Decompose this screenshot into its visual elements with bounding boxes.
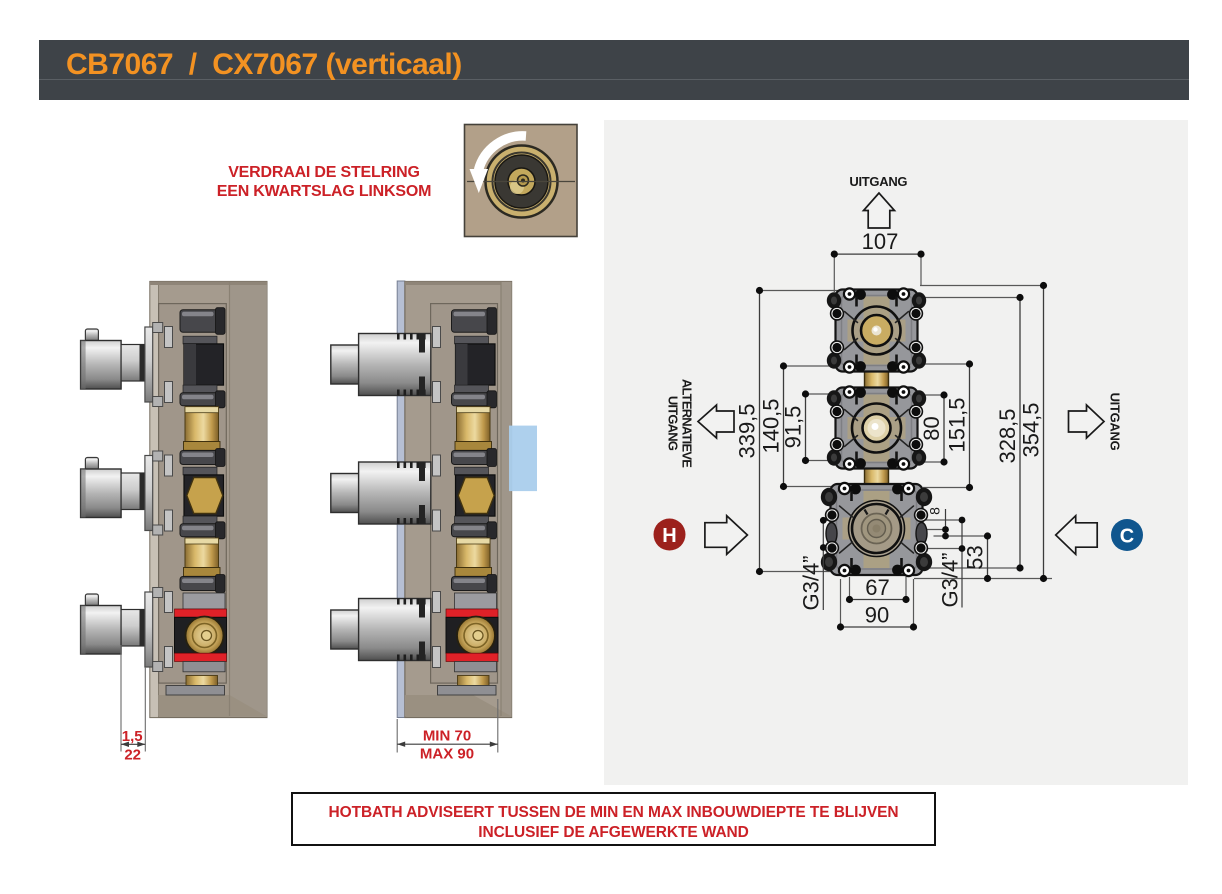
svg-text:G3/4”: G3/4” [799,555,824,610]
svg-text:107: 107 [862,229,899,254]
svg-text:MAX 90: MAX 90 [420,746,474,763]
svg-text:339,5: 339,5 [735,403,760,458]
svg-text:1,5: 1,5 [122,728,143,745]
svg-text:53: 53 [963,545,988,569]
svg-text:354,5: 354,5 [1019,402,1044,457]
svg-text:UITGANG: UITGANG [849,174,907,189]
svg-text:C: C [1120,526,1134,548]
svg-text:67: 67 [865,575,889,600]
svg-text:91,5: 91,5 [781,406,806,449]
svg-text:G3/4”: G3/4” [938,552,963,607]
svg-text:8: 8 [927,507,943,515]
svg-text:UITGANG: UITGANG [1108,393,1123,451]
svg-text:MIN 70: MIN 70 [423,728,471,745]
svg-text:328,5: 328,5 [995,408,1020,463]
svg-text:22: 22 [124,747,141,764]
svg-text:80: 80 [919,416,944,440]
svg-text:151,5: 151,5 [945,397,970,452]
svg-text:90: 90 [865,603,889,628]
svg-text:H: H [662,525,676,547]
